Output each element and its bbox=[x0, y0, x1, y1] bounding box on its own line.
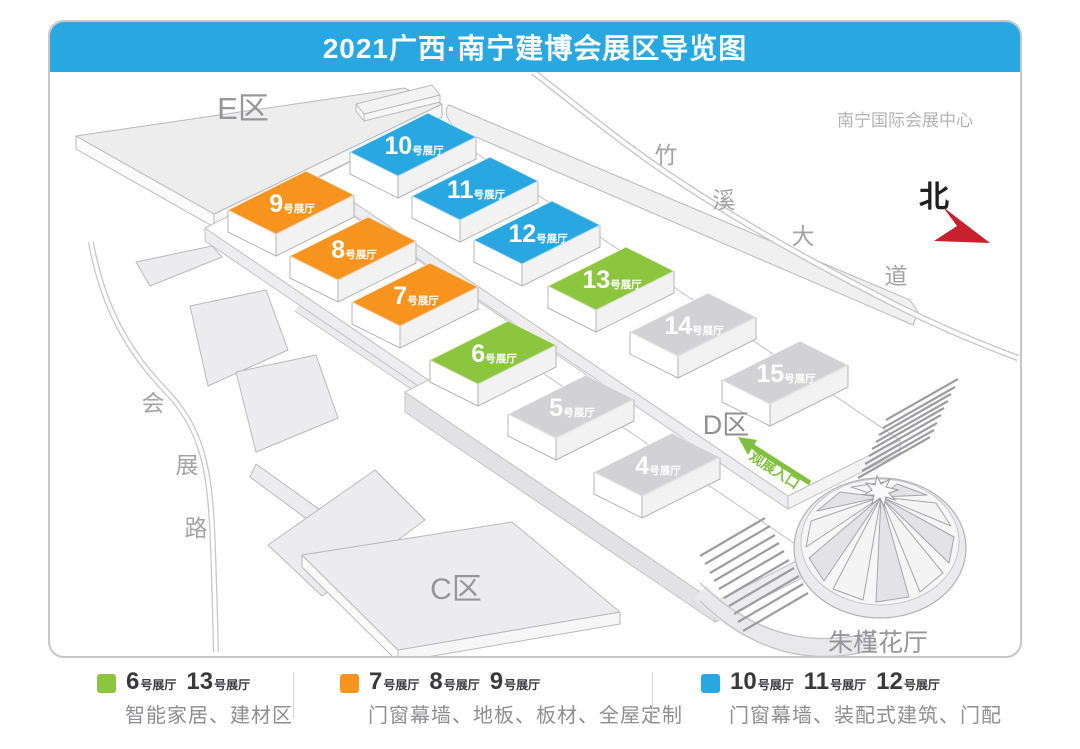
legend-item-blue: 10号展厅 11号展厅 12号展厅 门窗幕墙、装配式建筑、门配 bbox=[701, 670, 1002, 728]
svg-text:竹: 竹 bbox=[655, 142, 678, 168]
svg-text:大: 大 bbox=[792, 223, 815, 249]
page: 2021广西·南宁建博会展区导览图 bbox=[0, 0, 1080, 749]
flower-hall-label: 朱槿花厅 bbox=[828, 629, 928, 656]
legend-item-orange: 7号展厅 8号展厅 9号展厅 门窗幕墙、地板、板材、全屋定制 bbox=[340, 670, 683, 728]
title-bar: 2021广西·南宁建博会展区导览图 bbox=[50, 22, 1020, 72]
map-frame: 2021广西·南宁建博会展区导览图 bbox=[48, 20, 1022, 658]
blue-swatch-icon bbox=[701, 674, 720, 693]
road-huizhan-label: 会 展 路 bbox=[142, 390, 208, 541]
north-label: 北 bbox=[919, 181, 949, 214]
zone-d-label: D区 bbox=[703, 410, 750, 440]
svg-text:路: 路 bbox=[185, 515, 208, 541]
exhibition-map-canvas: 10号展厅 11号展厅 12号展厅 13号展厅 14号展厅 bbox=[50, 72, 1020, 656]
road-huizhan bbox=[91, 242, 216, 652]
legend-desc-orange: 门窗幕墙、地板、板材、全屋定制 bbox=[368, 699, 683, 728]
page-title: 2021广西·南宁建博会展区导览图 bbox=[323, 27, 748, 67]
legend-divider bbox=[652, 672, 653, 718]
svg-text:道: 道 bbox=[885, 263, 908, 289]
legend-item-green: 6号展厅 13号展厅 智能家居、建材区 bbox=[97, 670, 293, 728]
svg-text:会: 会 bbox=[142, 390, 165, 416]
svg-text:展: 展 bbox=[176, 452, 199, 478]
zone-c-label: C区 bbox=[430, 573, 482, 606]
svg-text:溪: 溪 bbox=[713, 187, 736, 213]
flower-hall bbox=[794, 476, 966, 618]
legend: 6号展厅 13号展厅 智能家居、建材区 7号展厅 8号展厅 9号展厅 门窗幕墙、… bbox=[48, 664, 1048, 746]
venue-label: 南宁国际会展中心 bbox=[837, 111, 973, 130]
legend-desc-green: 智能家居、建材区 bbox=[125, 699, 293, 728]
legend-divider bbox=[293, 672, 294, 718]
north-indicator: 北 bbox=[919, 181, 990, 243]
legend-desc-blue: 门窗幕墙、装配式建筑、门配 bbox=[729, 699, 1002, 728]
orange-swatch-icon bbox=[340, 674, 359, 693]
green-swatch-icon bbox=[97, 674, 116, 693]
zone-e-label: E区 bbox=[217, 91, 269, 126]
